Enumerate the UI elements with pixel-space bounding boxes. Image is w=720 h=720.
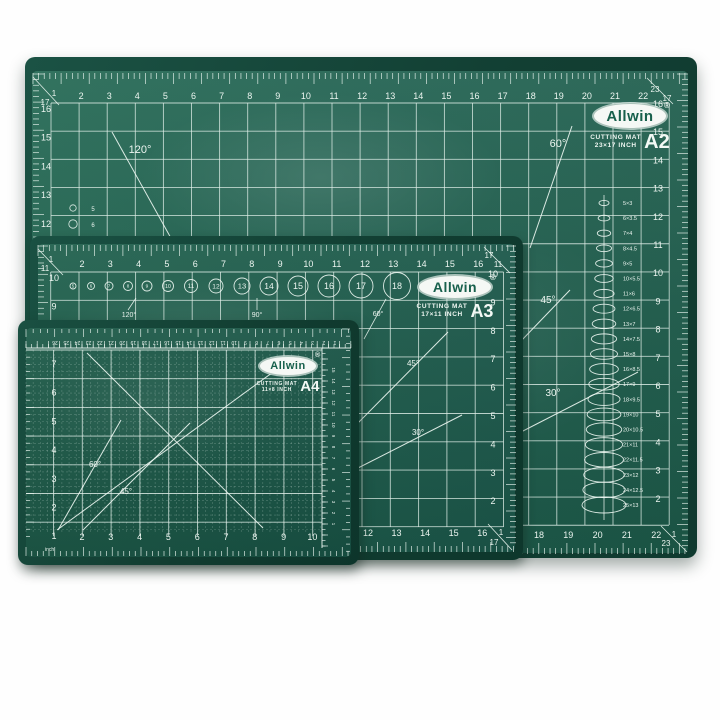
corner-number: 1 <box>499 528 504 537</box>
ellipse-gauge-label: 25×13 <box>623 503 638 509</box>
ellipse-gauge-label: 6×3.5 <box>623 216 637 222</box>
cm-number: 25 <box>63 339 69 345</box>
cm-number: 9 <box>244 339 247 345</box>
brand-logo-a4: Allwin ® CUTTING MAT 11×8 INCH A4 <box>237 356 339 394</box>
ruler-number: 7 <box>51 359 56 369</box>
ellipse-gauge-label: 23×12 <box>623 473 638 479</box>
cm-number: 14 <box>186 339 192 345</box>
ruler-number: 14 <box>417 259 427 269</box>
size-code: A4 <box>300 379 319 394</box>
ruler-number: 9 <box>278 259 283 269</box>
cm-number: 23 <box>86 339 92 345</box>
ellipse-gauge-label: 19×10 <box>623 412 638 418</box>
ruler-number: 6 <box>191 91 196 101</box>
ruler-number: 3 <box>490 468 495 478</box>
dimension-label: 17×11 INCH <box>417 311 468 319</box>
size-code: A3 <box>470 302 493 320</box>
cm-number: 1 <box>333 339 336 345</box>
ruler-number: 4 <box>655 437 660 447</box>
product-name: CUTTING MAT <box>417 303 468 311</box>
ruler-number: 2 <box>490 496 495 506</box>
cm-number: 11 <box>331 412 336 417</box>
ruler-number: 18 <box>534 530 544 540</box>
ruler-number: 5 <box>166 532 171 542</box>
allwin-oval-logo: Allwin <box>259 356 317 376</box>
circled-number: 10 <box>165 284 171 290</box>
product-name: CUTTING MAT <box>590 134 641 142</box>
ellipse-gauge-label: 9×5 <box>623 261 632 267</box>
ruler-number: 18 <box>526 91 536 101</box>
ellipse-gauge-label: 24×12.5 <box>623 488 643 494</box>
ruler-number: 8 <box>247 91 252 101</box>
ellipse-gauge-label: 15×8 <box>623 352 635 358</box>
ruler-number: 6 <box>655 381 660 391</box>
ruler-number: 1 <box>51 531 56 541</box>
ruler-number: 15 <box>449 528 459 538</box>
cm-number: 18 <box>142 339 148 345</box>
ruler-number: 10 <box>653 268 663 278</box>
cm-number: 8 <box>255 339 258 345</box>
cm-number: 8 <box>331 446 336 449</box>
ruler-number: 7 <box>655 353 660 363</box>
product-label: CUTTING MAT 17×11 INCH A3 <box>399 302 511 320</box>
ruler-number: 13 <box>392 528 402 538</box>
ruler-number: 8 <box>252 532 257 542</box>
cm-number: 16 <box>164 339 170 345</box>
ruler-number: 5 <box>51 416 56 426</box>
circled-number: 17 <box>356 281 366 291</box>
size-code: A2 <box>644 132 670 152</box>
circle-gauge-label: 5 <box>91 207 95 213</box>
ruler-number: 10 <box>49 273 59 283</box>
ruler-number: 19 <box>563 530 573 540</box>
ellipse-gauge-label: 11×6 <box>623 292 635 298</box>
ruler-number: 16 <box>469 91 479 101</box>
ruler-number: 16 <box>473 259 483 269</box>
cm-number: 3 <box>331 501 336 504</box>
angle-tick-60 <box>364 299 386 339</box>
angle-tick-120 <box>128 298 136 310</box>
cm-number: 7 <box>266 339 269 345</box>
ruler-number: 7 <box>490 354 495 364</box>
ruler-number: 21 <box>622 530 632 540</box>
circled-number: 6 <box>90 284 93 289</box>
registered-mark: ® <box>664 101 670 110</box>
brand-name: Allwin <box>606 108 653 125</box>
ellipse-gauge-label: 16×8.5 <box>623 367 640 373</box>
ruler-number: 9 <box>281 532 286 542</box>
ruler-number: 14 <box>653 155 663 165</box>
registered-mark: ® <box>315 352 320 359</box>
brand-logo-a3: Allwin ® CUTTING MAT 17×11 INCH A3 <box>399 275 511 320</box>
circled-number: 12 <box>212 283 220 290</box>
dimension-label: 11×8 INCH <box>257 387 298 393</box>
unit-label: inch <box>45 547 54 553</box>
ellipse-gauge-label: 21×11 <box>623 443 638 449</box>
brand-logo-a2: Allwin ® CUTTING MAT 23×17 INCH A2 <box>570 103 690 152</box>
angle-label: 30° <box>545 388 560 399</box>
corner-number: 17 <box>41 98 50 107</box>
angle-label: 45° <box>540 295 555 306</box>
ruler-number: 21 <box>610 91 620 101</box>
ruler-number: 4 <box>490 439 495 449</box>
circle-gauge <box>69 220 77 228</box>
ruler-number: 8 <box>249 259 254 269</box>
ruler-number: 3 <box>655 466 660 476</box>
ellipse-gauge-label: 17×9 <box>623 382 635 388</box>
cm-number: 5 <box>331 479 336 482</box>
cm-number: 4 <box>331 490 336 493</box>
ruler-number: 3 <box>108 259 113 269</box>
cm-number: 17 <box>153 339 159 345</box>
cm-number: 12 <box>209 339 215 345</box>
cm-number: 20 <box>119 339 125 345</box>
ruler-number: 12 <box>363 528 373 538</box>
cm-number: 24 <box>74 339 80 345</box>
ruler-number: 9 <box>275 91 280 101</box>
ellipse-gauge-label: 10×5.5 <box>623 277 640 283</box>
ruler-number: 2 <box>79 532 84 542</box>
ruler-number: 15 <box>441 91 451 101</box>
ruler-number: 19 <box>554 91 564 101</box>
brand-name: Allwin <box>433 279 477 295</box>
cm-number: 6 <box>331 468 336 471</box>
ruler-number: 6 <box>193 259 198 269</box>
circle-gauge-label: 6 <box>91 223 95 229</box>
ellipse-gauge-label: 12×6.5 <box>623 307 640 313</box>
ruler-number: 4 <box>136 259 141 269</box>
corner-number: 11 <box>41 264 50 273</box>
ruler-number: 10 <box>301 91 311 101</box>
ruler-number: 11 <box>653 240 662 250</box>
ruler-number: 4 <box>51 445 56 455</box>
ellipse-gauge-label: 7×4 <box>623 231 632 237</box>
ruler-number: 15 <box>445 259 455 269</box>
ruler-number: 6 <box>195 532 200 542</box>
angle-label: 45° <box>120 487 132 496</box>
allwin-oval-logo: Allwin <box>418 275 492 299</box>
circled-number: 16 <box>324 281 334 291</box>
ruler-number: 15 <box>41 133 51 143</box>
ellipse-gauge-label: 8×4.5 <box>623 246 637 252</box>
ruler-number: 6 <box>51 388 56 398</box>
angle-label: 30° <box>412 428 424 437</box>
ruler-number: 7 <box>221 259 226 269</box>
ruler-number: 9 <box>51 301 56 311</box>
ruler-number: 13 <box>41 190 51 200</box>
ruler-number: 6 <box>490 383 495 393</box>
angle-label: 45° <box>407 359 419 368</box>
cm-number: 10 <box>331 422 336 428</box>
cm-number: 10 <box>231 339 237 345</box>
ruler-number: 20 <box>582 91 592 101</box>
cm-number: 26 <box>52 339 58 345</box>
ruler-number: 10 <box>303 259 313 269</box>
ruler-number: 5 <box>655 409 660 419</box>
angle-label: 60° <box>373 310 384 318</box>
ruler-number: 12 <box>653 212 663 222</box>
ruler-number: 3 <box>108 532 113 542</box>
ruler-number: 11 <box>332 259 341 269</box>
ruler-number: 7 <box>219 91 224 101</box>
ruler-number: 14 <box>420 528 430 538</box>
cm-number: 1 <box>331 523 336 526</box>
ruler-number: 17 <box>498 91 508 101</box>
cm-number: 13 <box>198 339 204 345</box>
ruler-number: 5 <box>164 259 169 269</box>
ruler-number: 2 <box>51 503 56 513</box>
ruler-number: 2 <box>79 91 84 101</box>
cm-number: 9 <box>331 435 336 438</box>
angle-label: 60° <box>550 138 567 150</box>
cm-number: 7 <box>331 457 336 460</box>
cutting-mats-product-photo: 2345678910111213141516171819202122161514… <box>0 0 720 720</box>
ruler-number: 14 <box>41 161 51 171</box>
ruler-number: 22 <box>651 530 661 540</box>
cm-number: 5 <box>289 339 292 345</box>
ellipse-gauge-label: 22×11.5 <box>623 458 643 464</box>
ruler-number: 13 <box>388 259 398 269</box>
circled-number: 9 <box>146 284 149 290</box>
corner-number: 23 <box>662 539 671 548</box>
angle-label: 120° <box>122 311 137 319</box>
product-label: CUTTING MAT 11×8 INCH A4 <box>237 379 339 394</box>
angle-line-45 <box>83 423 190 530</box>
ruler-number: 7 <box>223 532 228 542</box>
dimension-label: 23×17 INCH <box>590 142 641 150</box>
ruler-number: 13 <box>653 184 663 194</box>
ruler-number: 8 <box>490 326 495 336</box>
angle-line-30 <box>521 372 638 432</box>
circled-number: 15 <box>293 281 303 291</box>
angle-line-45 <box>356 332 448 425</box>
angle-label: 90° <box>252 311 263 319</box>
ruler-number: 5 <box>163 91 168 101</box>
circle-gauge <box>70 205 76 211</box>
cm-number: 11 <box>220 339 225 345</box>
ruler-number: 22 <box>638 91 648 101</box>
ellipse-gauge-label: 14×7.5 <box>623 337 640 343</box>
ellipse-gauge-label: 5×3 <box>623 201 632 207</box>
cm-number: 2 <box>322 339 325 345</box>
angle-label: 60° <box>89 460 101 469</box>
ellipse-gauge-label: 13×7 <box>623 322 635 328</box>
ruler-number: 4 <box>135 91 140 101</box>
ruler-number: 12 <box>41 219 51 229</box>
ruler-number: 14 <box>413 91 423 101</box>
ruler-number: 12 <box>360 259 370 269</box>
ruler-number: 13 <box>385 91 395 101</box>
cm-number: 12 <box>331 400 336 406</box>
angle-label: 120° <box>129 144 152 156</box>
circled-number: 13 <box>238 282 246 291</box>
ruler-number: 10 <box>307 532 317 542</box>
registered-mark: ® <box>490 273 496 282</box>
ellipse-gauge-label: 20×10.5 <box>623 428 643 434</box>
product-label: CUTTING MAT 23×17 INCH A2 <box>570 132 690 152</box>
cm-number: 4 <box>300 339 303 345</box>
ruler-number: 9 <box>655 296 660 306</box>
cm-number: 15 <box>175 339 181 345</box>
circled-number: 11 <box>188 283 195 290</box>
cm-number: 6 <box>277 339 280 345</box>
ruler-number: 3 <box>51 474 56 484</box>
ruler-number: 11 <box>329 91 338 101</box>
circled-number: 7 <box>108 284 111 289</box>
cm-number: 21 <box>108 339 114 345</box>
ruler-number: 2 <box>79 259 84 269</box>
ruler-number: 3 <box>107 91 112 101</box>
ruler-number: 4 <box>137 532 142 542</box>
ruler-number: 8 <box>655 325 660 335</box>
ruler-number: 5 <box>490 411 495 421</box>
brand-name: Allwin <box>270 360 305 372</box>
cutting-mat-a4: 2625242322212019181716151413121110987654… <box>18 320 359 565</box>
cm-number: 2 <box>331 512 336 515</box>
product-name: CUTTING MAT <box>257 381 298 387</box>
circled-number: 14 <box>264 281 274 291</box>
ellipse-gauge-label: 18×9.5 <box>623 397 640 403</box>
circled-number: 8 <box>127 284 130 289</box>
allwin-oval-logo: Allwin <box>593 103 667 129</box>
ruler-number: 12 <box>357 91 367 101</box>
cm-number: 22 <box>97 339 103 345</box>
ruler-number: 2 <box>655 494 660 504</box>
circled-number: 5 <box>72 284 75 289</box>
corner-number: 17 <box>490 538 499 547</box>
cm-number: 3 <box>311 339 314 345</box>
cm-number: 19 <box>130 339 136 345</box>
corner-number: 1 <box>52 89 57 98</box>
ruler-number: 20 <box>593 530 603 540</box>
ruler-number: 16 <box>477 528 487 538</box>
